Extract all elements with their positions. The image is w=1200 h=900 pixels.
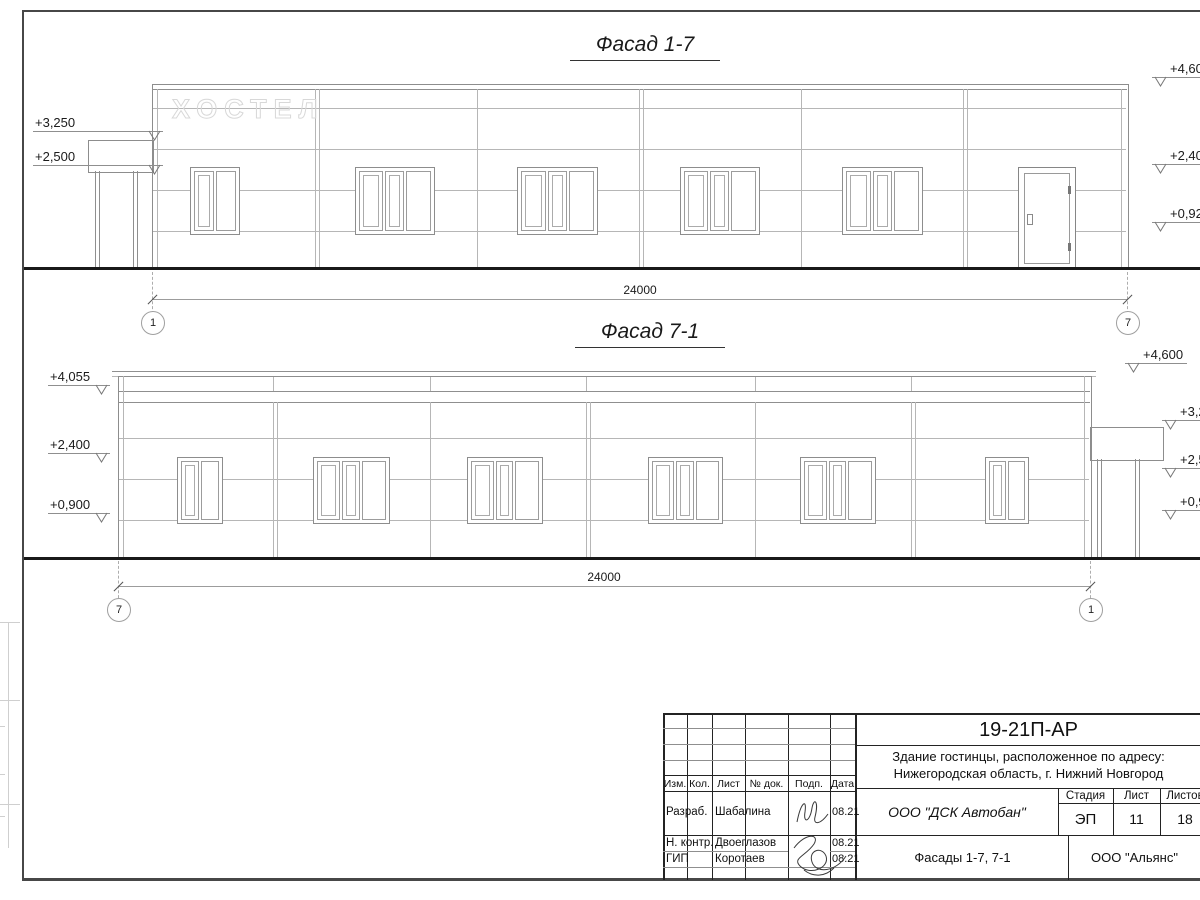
entrance-door [1018, 167, 1076, 268]
window [517, 167, 598, 235]
project-description-line2: Нижегородская область, г. Нижний Новгоро… [857, 764, 1200, 782]
window [842, 167, 923, 235]
window [680, 167, 760, 235]
elevation-mark: +2,500 [1162, 452, 1200, 469]
door-hinge [1068, 243, 1071, 251]
stage-value: ЭП [1058, 804, 1113, 834]
elevation-mark: +4,055 [48, 369, 110, 386]
window-pane [696, 461, 719, 520]
window-pane [848, 461, 872, 520]
elevation-mark: +4,600 [1125, 347, 1187, 364]
window-pane [569, 171, 594, 231]
window [190, 167, 240, 235]
dimension-line [152, 299, 1127, 300]
ground-line [24, 267, 1200, 270]
dimension-line [118, 586, 1090, 587]
window-casement [359, 171, 383, 231]
panel-joint [967, 89, 968, 268]
canopy-post [1101, 459, 1102, 558]
row-date: 08.21 [832, 806, 860, 818]
panel-joint [586, 402, 587, 558]
titleblock-line [712, 713, 713, 880]
elevation-mark: +4,600 [1152, 61, 1200, 78]
window-casement [804, 461, 827, 520]
window-pane [894, 171, 919, 231]
row-role: Разраб. [666, 806, 707, 818]
window-casement [471, 461, 494, 520]
elevation-arrow-icon [1164, 467, 1177, 478]
sheets-label: Листов [1160, 789, 1200, 803]
window-pane [201, 461, 219, 520]
facade2-title: Фасад 7-1 [575, 320, 725, 348]
margin-mark [0, 804, 20, 805]
window [800, 457, 876, 524]
panel-joint [801, 89, 802, 268]
panel-joint [643, 89, 644, 268]
drawing-sheet: { "facade1": { "title": "Фасад 1-7", "si… [0, 0, 1200, 900]
contractor: ООО "Альянс" [1069, 836, 1200, 879]
elevation-mark: +2,500 [33, 149, 163, 166]
panel-joint [639, 89, 640, 268]
signature [792, 792, 832, 834]
panel-joint [430, 402, 431, 558]
door-handle [1027, 214, 1033, 225]
canopy-post [1135, 459, 1136, 558]
margin-mark [0, 726, 5, 727]
sheets-total: 18 [1160, 804, 1200, 834]
window-casement [317, 461, 340, 520]
panel-joint [277, 402, 278, 558]
frame-left [22, 10, 24, 880]
elevation-mark: +3,250 [33, 115, 163, 132]
window-pane [515, 461, 539, 520]
window [355, 167, 435, 235]
panel-joint [755, 402, 756, 558]
facade1-title: Фасад 1-7 [570, 33, 720, 61]
sheet-number: 11 [1113, 804, 1160, 834]
corner-trim [123, 376, 124, 558]
corner-trim [1121, 89, 1122, 268]
window-casement [676, 461, 693, 520]
window-casement [181, 461, 199, 520]
elevation-arrow-icon [1154, 76, 1167, 87]
margin-mark [8, 622, 9, 848]
window-casement [829, 461, 847, 520]
window [985, 457, 1029, 524]
window-pane [216, 171, 236, 231]
window-casement [989, 461, 1006, 520]
elevation-mark: +2,400 [48, 437, 110, 454]
window [177, 457, 223, 524]
dimension-value: 24000 [554, 570, 654, 584]
elevation-arrow-icon [148, 130, 161, 141]
margin-mark [0, 622, 20, 623]
window-casement [684, 171, 708, 231]
elevation-arrow-icon [1164, 509, 1177, 520]
elevation-arrow-icon [1164, 419, 1177, 430]
margin-mark [0, 774, 5, 775]
elevation-mark: +2,400 [1152, 148, 1200, 165]
siding-joint [119, 479, 1089, 480]
titleblock-line [663, 851, 788, 852]
col-doc: № док. [745, 776, 788, 791]
titleblock-border [663, 713, 665, 880]
titleblock-line [663, 728, 855, 729]
elevation-arrow-icon [148, 164, 161, 175]
window-casement [548, 171, 567, 231]
window-pane [731, 171, 756, 231]
signature [786, 830, 852, 880]
window-casement [342, 461, 360, 520]
axis-bubble: 1 [1079, 598, 1103, 622]
frame-top [22, 10, 1200, 12]
dimension-value: 24000 [590, 283, 690, 297]
margin-mark [0, 816, 5, 817]
col-kol: Кол. [687, 776, 712, 791]
elevation-arrow-icon [1154, 221, 1167, 232]
extension-line [118, 561, 119, 603]
row-role: Н. контр. [666, 837, 713, 849]
roof-edge [112, 371, 1096, 372]
siding-joint [119, 520, 1089, 521]
window-casement [194, 171, 214, 231]
titleblock-line [855, 745, 1200, 746]
panel-joint [477, 89, 478, 268]
col-list: Лист [712, 776, 745, 791]
panel-joint [273, 402, 274, 558]
canopy-post [133, 171, 134, 268]
window [467, 457, 543, 524]
siding-joint [119, 438, 1089, 439]
axis-bubble: 1 [141, 311, 165, 335]
axis-bubble: 7 [1116, 311, 1140, 335]
elevation-arrow-icon [95, 384, 108, 395]
titleblock-line [663, 744, 855, 745]
window-casement [385, 171, 404, 231]
row-name: Шабалина [715, 806, 771, 818]
extension-line [152, 272, 153, 314]
window-pane [362, 461, 386, 520]
canopy-post [137, 171, 138, 268]
ground-line [24, 557, 1200, 560]
drawing-title: Фасады 1-7, 7-1 [857, 836, 1068, 879]
window-casement [710, 171, 729, 231]
project-description-line1: Здание гостинцы, расположенное по адресу… [857, 747, 1200, 765]
elevation-mark: +0,900 [48, 497, 110, 514]
extension-line [1127, 272, 1128, 314]
col-izm: Изм. [663, 776, 687, 791]
canopy-post [99, 171, 100, 268]
facade2-building-outline [118, 376, 1092, 560]
margin-mark [0, 700, 20, 701]
window-casement [873, 171, 892, 231]
window-pane [1008, 461, 1025, 520]
col-podp: Подп. [788, 776, 830, 791]
axis-bubble: 7 [107, 598, 131, 622]
titleblock-line [663, 760, 855, 761]
window-pane [406, 171, 431, 231]
elevation-arrow-icon [1154, 163, 1167, 174]
doc-number: 19-21П-АР [857, 715, 1200, 745]
canopy-post [1097, 459, 1098, 558]
elevation-mark: +3,250 [1162, 404, 1200, 421]
window-casement [521, 171, 546, 231]
window-casement [496, 461, 514, 520]
panel-joint [915, 402, 916, 558]
row-role: ГИП [666, 853, 689, 865]
stage-label: Стадия [1058, 789, 1113, 803]
elevation-mark: +0,920 [1162, 494, 1200, 511]
canopy-slab [1090, 427, 1164, 461]
panel-joint [963, 89, 964, 268]
hostel-signage: ХОСТЕЛ [172, 94, 325, 125]
design-company: ООО "ДСК Автобан" [857, 790, 1057, 833]
canopy-post [1139, 459, 1140, 558]
row-name: Двоеглазов [715, 837, 776, 849]
window [648, 457, 723, 524]
elevation-arrow-icon [95, 512, 108, 523]
elevation-arrow-icon [1127, 362, 1140, 373]
corner-trim [1084, 376, 1085, 558]
extension-line [1090, 561, 1091, 603]
window-casement [652, 461, 674, 520]
window-casement [846, 171, 871, 231]
window [313, 457, 390, 524]
panel-joint [590, 402, 591, 558]
sheet-label: Лист [1113, 789, 1160, 803]
canopy-post [95, 171, 96, 268]
panel-joint [911, 402, 912, 558]
elevation-arrow-icon [95, 452, 108, 463]
elevation-mark: +0,920 [1152, 206, 1200, 223]
row-name: Коротаев [715, 853, 765, 865]
door-hinge [1068, 186, 1071, 194]
col-data: Дата [830, 776, 855, 791]
